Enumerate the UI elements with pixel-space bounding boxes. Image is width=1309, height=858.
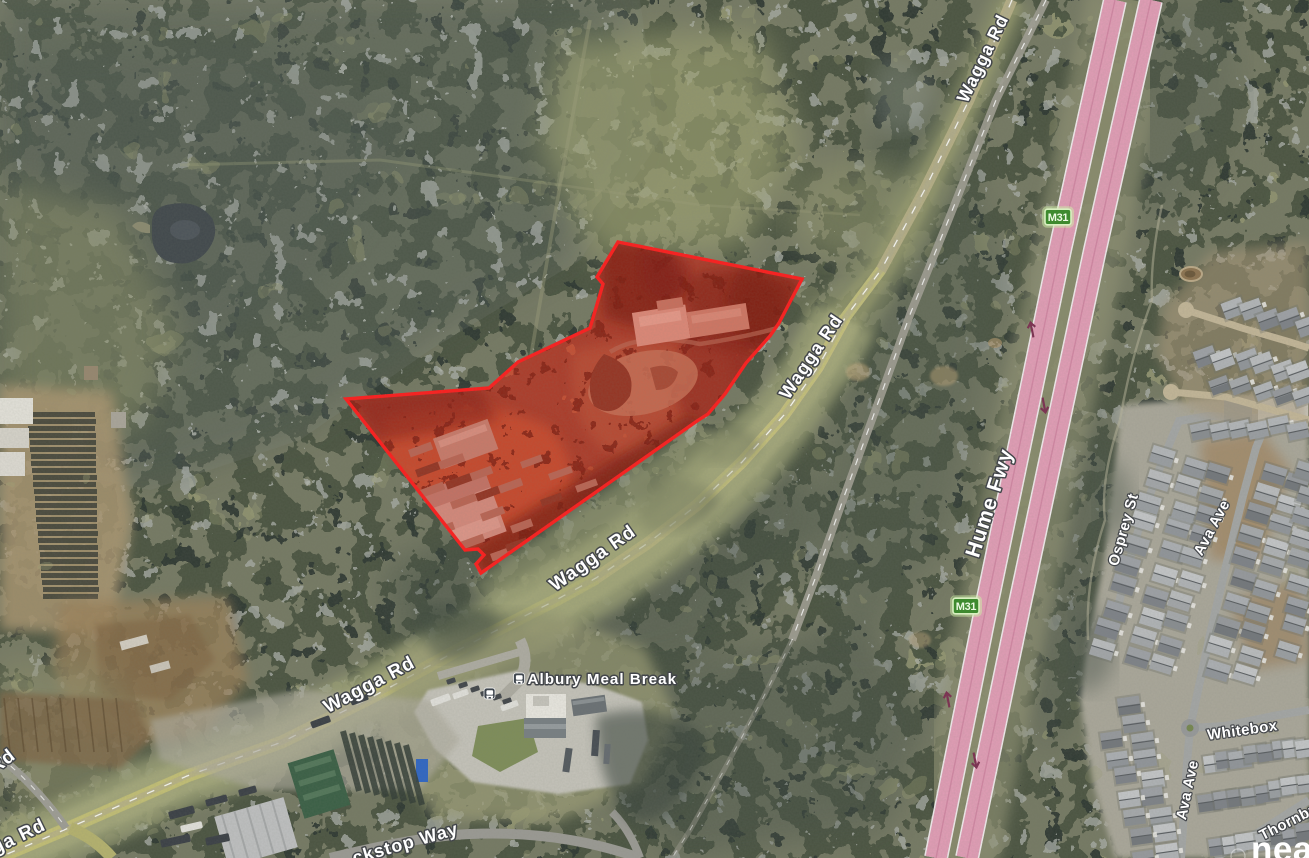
svg-text:Albury Meal Break: Albury Meal Break: [528, 671, 678, 688]
svg-text:M31: M31: [1048, 212, 1069, 224]
svg-text:M31: M31: [956, 601, 977, 613]
svg-text:nea: nea: [1251, 830, 1309, 858]
